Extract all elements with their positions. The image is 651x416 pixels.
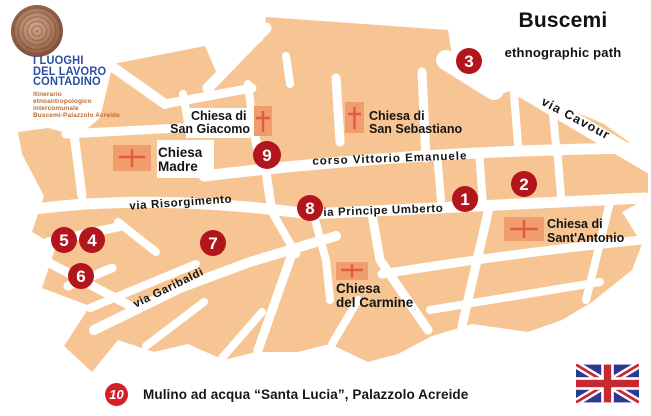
- page-subtitle: ethnographic path: [488, 45, 638, 60]
- church-icon-san-sebastiano: [345, 102, 364, 133]
- church-icon-san-giacomo: [254, 106, 272, 136]
- poi-marker-10-label: 10: [109, 387, 123, 402]
- millstone-seal-logo: [11, 5, 63, 57]
- poi-marker-8[interactable]: 8: [297, 195, 323, 221]
- logo-subtitle-line: Buscemi-Palazzolo Acreide: [33, 112, 120, 119]
- poi-marker-4[interactable]: 4: [79, 227, 105, 253]
- svg-text:7: 7: [208, 234, 217, 253]
- svg-text:5: 5: [59, 231, 68, 250]
- logo-title-line: CONTADINO: [33, 77, 116, 88]
- logo-subtitle: itinerario etnoantropologico intercomuna…: [33, 91, 120, 119]
- church-icon-madre: [113, 145, 151, 171]
- svg-text:2: 2: [519, 175, 528, 194]
- footer-caption-text: Mulino ad acqua “Santa Lucia”, Palazzolo…: [143, 387, 468, 402]
- poi-marker-5[interactable]: 5: [51, 227, 77, 253]
- page-title: Buscemi: [488, 9, 638, 33]
- poi-marker-2[interactable]: 2: [511, 171, 537, 197]
- poi-marker-3[interactable]: 3: [456, 48, 482, 74]
- church-icon-carmine: [336, 262, 368, 280]
- logo-title: I LUOGHI DEL LAVORO CONTADINO: [33, 56, 116, 88]
- buscemi-map-page: via Cavour corso Vittorio Emanuele via P…: [0, 0, 651, 416]
- svg-text:9: 9: [262, 146, 271, 165]
- svg-text:6: 6: [76, 267, 85, 286]
- poi-marker-6[interactable]: 6: [68, 263, 94, 289]
- logo-subtitle-line: itinerario: [33, 91, 120, 98]
- poi-marker-1[interactable]: 1: [452, 186, 478, 212]
- logo-subtitle-line: intercomunale: [33, 105, 120, 112]
- poi-marker-10[interactable]: 10: [105, 383, 128, 406]
- logo-text-block: I LUOGHI DEL LAVORO CONTADINO itinerario…: [33, 56, 120, 119]
- logo-title-line: I LUOGHI: [33, 56, 116, 67]
- church-icon-sant-antonio: [504, 217, 544, 241]
- map-header: Buscemi ethnographic path: [488, 9, 638, 60]
- svg-text:8: 8: [305, 199, 314, 218]
- poi-marker-7[interactable]: 7: [200, 230, 226, 256]
- footer-caption: 10 Mulino ad acqua “Santa Lucia”, Palazz…: [105, 383, 468, 406]
- svg-text:4: 4: [87, 231, 97, 250]
- svg-text:1: 1: [460, 190, 469, 209]
- logo-subtitle-line: etnoantropologico: [33, 98, 120, 105]
- svg-text:3: 3: [464, 52, 473, 71]
- english-flag-icon[interactable]: [576, 364, 639, 403]
- poi-marker-9[interactable]: 9: [253, 141, 281, 169]
